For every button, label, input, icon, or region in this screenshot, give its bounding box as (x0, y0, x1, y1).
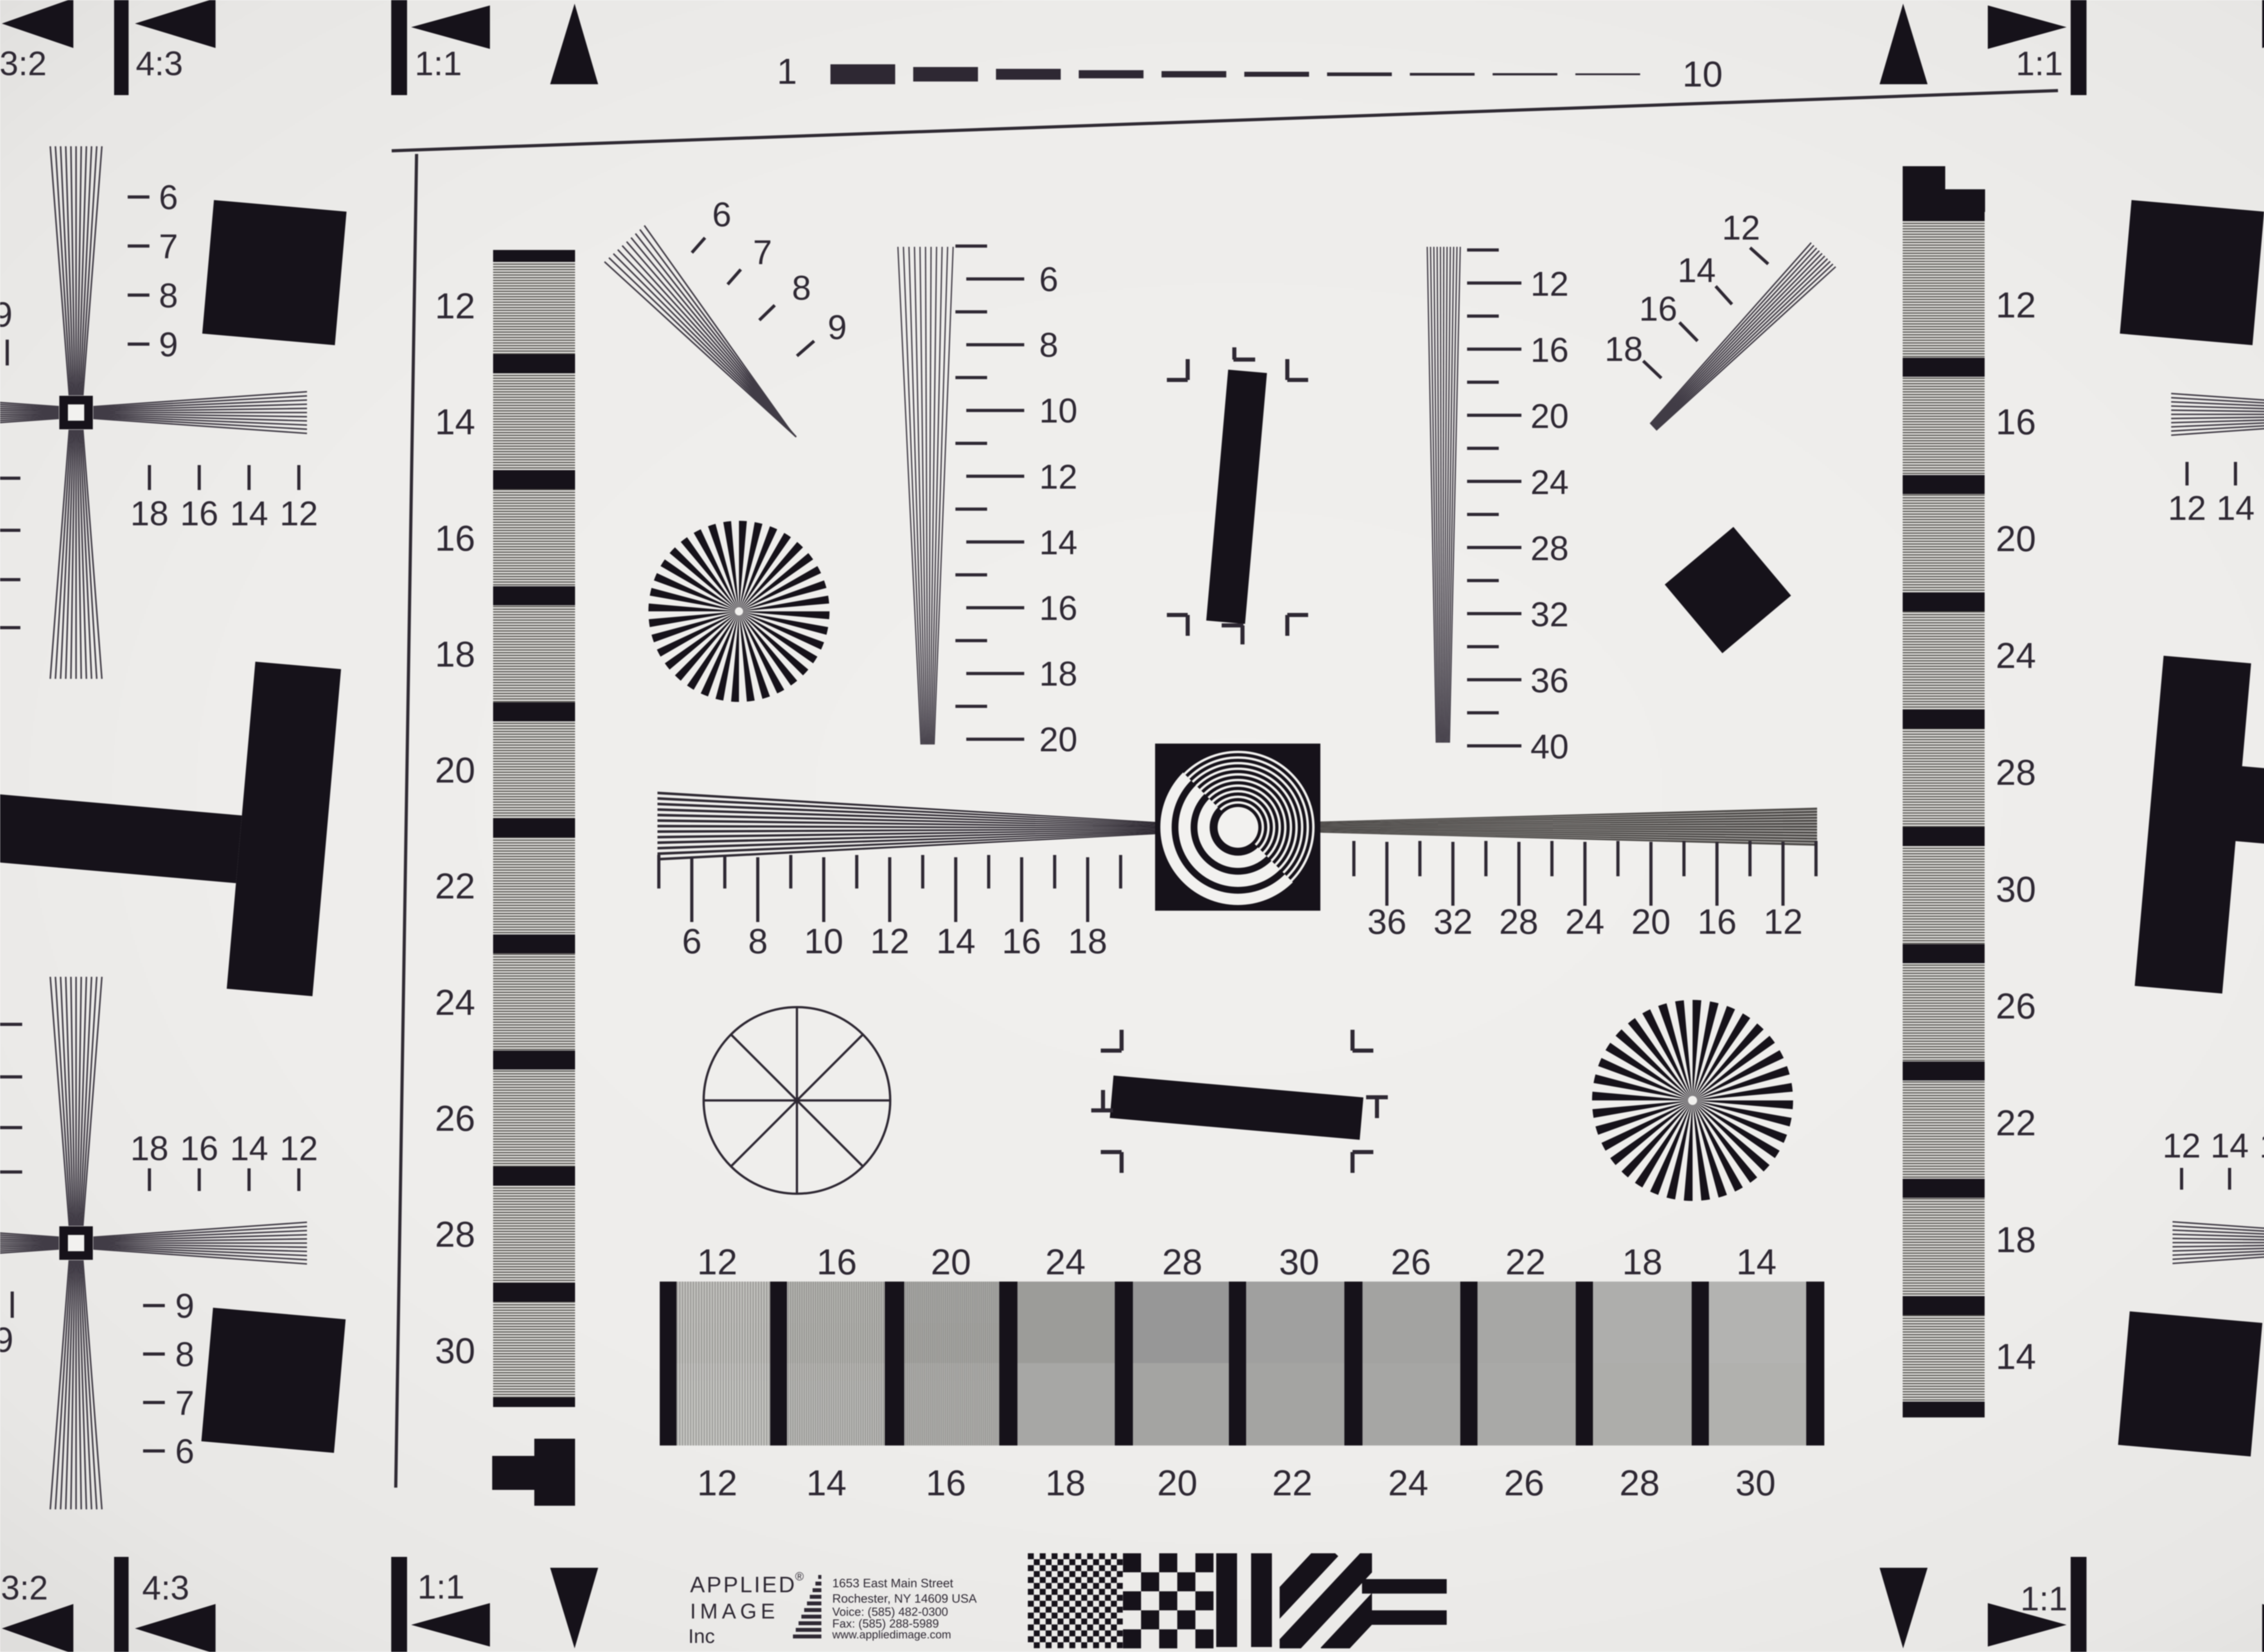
svg-text:32: 32 (1434, 902, 1473, 941)
svg-text:18: 18 (1622, 1242, 1663, 1282)
svg-text:30: 30 (435, 1330, 475, 1371)
svg-text:Rochester, NY 14609 USA: Rochester, NY 14609 USA (832, 1592, 977, 1605)
svg-text:10: 10 (804, 921, 844, 961)
svg-text:Inc: Inc (688, 1625, 715, 1647)
svg-text:16: 16 (2259, 1127, 2264, 1165)
svg-text:12: 12 (1996, 285, 2036, 325)
svg-text:12: 12 (1530, 265, 1569, 303)
svg-text:3:2: 3:2 (0, 44, 47, 82)
svg-text:18: 18 (1046, 1463, 1086, 1503)
svg-text:14: 14 (1678, 251, 1716, 290)
svg-text:1:1: 1:1 (417, 1568, 465, 1606)
svg-text:14: 14 (2216, 489, 2255, 528)
svg-text:9: 9 (0, 1320, 14, 1359)
svg-text:9: 9 (0, 294, 13, 334)
svg-text:18: 18 (1039, 655, 1078, 693)
svg-text:18: 18 (1605, 330, 1643, 369)
svg-text:14: 14 (230, 1129, 269, 1168)
svg-text:18: 18 (130, 1129, 169, 1168)
svg-text:3:2: 3:2 (1, 1569, 48, 1607)
svg-text:22: 22 (435, 866, 475, 906)
svg-text:12: 12 (2163, 1127, 2201, 1165)
svg-text:14: 14 (1736, 1242, 1777, 1282)
svg-text:12: 12 (280, 495, 318, 533)
svg-text:20: 20 (435, 750, 475, 790)
svg-text:28: 28 (1620, 1463, 1660, 1503)
svg-text:7: 7 (753, 233, 772, 272)
svg-text:8: 8 (159, 277, 178, 315)
svg-text:9: 9 (828, 308, 847, 347)
svg-text:4:3: 4:3 (142, 1569, 189, 1607)
svg-text:28: 28 (435, 1214, 475, 1254)
svg-text:1:1: 1:1 (2016, 44, 2063, 82)
svg-text:28: 28 (1996, 752, 2036, 792)
svg-text:26: 26 (435, 1098, 475, 1138)
svg-text:26: 26 (1996, 986, 2036, 1026)
svg-text:16: 16 (1996, 402, 2036, 442)
svg-text:12: 12 (435, 286, 475, 326)
svg-text:12: 12 (2168, 489, 2206, 528)
svg-text:1:1: 1:1 (415, 44, 462, 82)
svg-text:22: 22 (1506, 1242, 1546, 1282)
svg-text:12: 12 (697, 1242, 738, 1282)
svg-text:16: 16 (1639, 290, 1678, 328)
svg-text:30: 30 (1736, 1463, 1776, 1503)
svg-text:8: 8 (748, 921, 767, 961)
svg-text:10: 10 (1683, 54, 1723, 94)
svg-text:10: 10 (1039, 392, 1078, 430)
svg-text:6: 6 (1039, 260, 1058, 299)
svg-text:16: 16 (180, 495, 219, 533)
svg-text:30: 30 (1996, 869, 2036, 909)
svg-text:®: ® (795, 1570, 804, 1583)
svg-text:16: 16 (1002, 921, 1041, 961)
svg-text:20: 20 (931, 1242, 971, 1282)
svg-text:12: 12 (280, 1129, 318, 1168)
svg-text:24: 24 (435, 982, 475, 1023)
svg-text:16: 16 (435, 518, 475, 558)
svg-text:7: 7 (159, 227, 178, 266)
svg-text:14: 14 (1039, 523, 1078, 562)
svg-text:26: 26 (1504, 1463, 1545, 1503)
svg-text:14: 14 (1996, 1336, 2036, 1377)
svg-text:16: 16 (1698, 902, 1737, 941)
svg-text:APPLIED: APPLIED (690, 1573, 796, 1597)
svg-text:22: 22 (1272, 1463, 1313, 1503)
svg-text:24: 24 (1530, 463, 1569, 502)
svg-text:8: 8 (1039, 326, 1058, 365)
svg-text:16: 16 (1039, 589, 1078, 628)
svg-text:16: 16 (926, 1463, 966, 1503)
svg-text:18: 18 (130, 495, 169, 533)
svg-text:30: 30 (1279, 1242, 1319, 1282)
svg-text:16: 16 (180, 1129, 219, 1168)
svg-text:12: 12 (1764, 902, 1803, 941)
svg-text:1: 1 (777, 51, 797, 91)
svg-text:6: 6 (159, 178, 178, 217)
svg-text:12: 12 (697, 1463, 738, 1503)
svg-text:14: 14 (806, 1463, 847, 1503)
svg-text:18: 18 (1068, 921, 1108, 961)
svg-text:IMAGE: IMAGE (690, 1599, 779, 1623)
svg-text:20: 20 (1631, 902, 1671, 941)
svg-text:28: 28 (1530, 529, 1569, 568)
svg-text:12: 12 (1039, 458, 1078, 496)
svg-text:12: 12 (1722, 209, 1760, 247)
svg-text:7: 7 (175, 1384, 194, 1422)
svg-text:9: 9 (175, 1287, 194, 1325)
svg-text:40: 40 (1530, 728, 1569, 766)
svg-text:www.appliedimage.com: www.appliedimage.com (832, 1628, 951, 1641)
svg-text:14: 14 (2211, 1127, 2249, 1165)
svg-text:22: 22 (1996, 1103, 2036, 1143)
svg-text:14: 14 (230, 495, 269, 533)
svg-text:24: 24 (1996, 635, 2036, 676)
svg-text:9: 9 (159, 326, 178, 364)
svg-text:18: 18 (1996, 1220, 2036, 1260)
svg-text:14: 14 (435, 402, 475, 442)
svg-text:8: 8 (175, 1335, 194, 1374)
svg-text:32: 32 (1530, 595, 1569, 634)
svg-text:6: 6 (712, 196, 731, 234)
svg-text:20: 20 (1996, 519, 2036, 559)
svg-text:28: 28 (1499, 902, 1539, 941)
svg-text:20: 20 (1039, 720, 1078, 759)
svg-text:20: 20 (1157, 1463, 1198, 1503)
svg-text:4:3: 4:3 (136, 44, 183, 82)
svg-text:14: 14 (936, 921, 976, 961)
svg-text:12: 12 (870, 921, 910, 961)
svg-text:20: 20 (1530, 397, 1569, 436)
svg-text:6: 6 (682, 921, 701, 961)
svg-text:18: 18 (435, 634, 475, 674)
svg-text:28: 28 (1162, 1242, 1203, 1282)
svg-text:24: 24 (1046, 1242, 1086, 1282)
svg-text:24: 24 (1388, 1463, 1429, 1503)
svg-text:16: 16 (1530, 331, 1569, 370)
svg-text:1:1: 1:1 (2020, 1580, 2067, 1618)
svg-text:36: 36 (1367, 902, 1407, 941)
svg-text:26: 26 (1391, 1242, 1431, 1282)
svg-text:1653 East Main Street: 1653 East Main Street (832, 1576, 954, 1590)
svg-text:36: 36 (1530, 662, 1569, 700)
svg-text:24: 24 (1565, 902, 1605, 941)
svg-text:6: 6 (175, 1432, 194, 1471)
svg-text:16: 16 (817, 1242, 857, 1282)
svg-text:8: 8 (792, 269, 811, 307)
